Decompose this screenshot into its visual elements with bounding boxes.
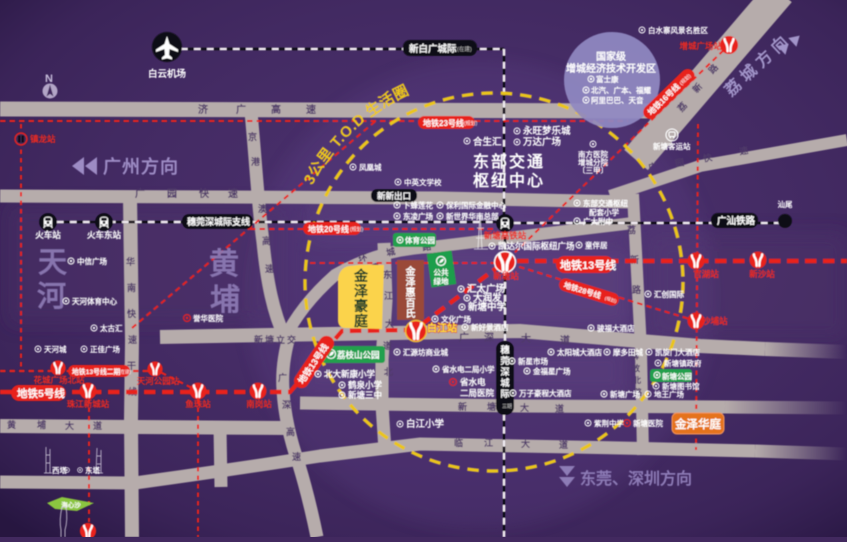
svg-text:东部交通: 东部交通 <box>473 152 545 171</box>
svg-text:北汽、广本、福耀: 北汽、广本、福耀 <box>591 85 651 95</box>
svg-text:黄: 黄 <box>7 419 16 430</box>
svg-text:新塘站: 新塘站 <box>493 271 519 281</box>
svg-text:汇创国际: 汇创国际 <box>654 289 684 299</box>
svg-text:大: 大 <box>385 318 394 329</box>
svg-text:泽: 泽 <box>406 276 416 289</box>
svg-text:园: 园 <box>167 188 177 200</box>
svg-text:华: 华 <box>126 256 135 267</box>
svg-text:放: 放 <box>631 363 641 373</box>
svg-text:增城经济技术开发区: 增城经济技术开发区 <box>566 62 656 75</box>
svg-text:快: 快 <box>198 187 210 200</box>
svg-text:地铁13号线: 地铁13号线 <box>560 258 616 272</box>
svg-text:深: 深 <box>484 331 494 344</box>
svg-text:速: 速 <box>306 103 316 116</box>
svg-text:汇源坊商业城: 汇源坊商业城 <box>403 347 448 357</box>
svg-text:配套小学: 配套小学 <box>589 207 619 217</box>
svg-text:东塔: 东塔 <box>85 465 100 475</box>
svg-text:黄: 黄 <box>209 248 239 281</box>
svg-text:京: 京 <box>248 131 257 142</box>
svg-text:永旺梦乐城: 永旺梦乐城 <box>522 125 571 137</box>
svg-text:国家级: 国家级 <box>596 50 627 63</box>
svg-text:速: 速 <box>292 451 301 462</box>
svg-text:路: 路 <box>632 284 642 295</box>
svg-text:天: 天 <box>38 247 67 279</box>
svg-text:万子豪程大酒店: 万子豪程大酒店 <box>518 388 572 398</box>
svg-text:豪: 豪 <box>354 298 368 314</box>
svg-text:太阳城大酒店: 太阳城大酒店 <box>557 347 602 357</box>
svg-text:〔三甲〕: 〔三甲〕 <box>578 165 608 175</box>
svg-text:凯旋门大酒店: 凯旋门大酒店 <box>655 347 700 357</box>
svg-text:紫荆中学: 紫荆中学 <box>594 418 624 428</box>
svg-text:镇龙站: 镇龙站 <box>30 134 56 144</box>
svg-text:庭: 庭 <box>354 313 369 329</box>
svg-text:穗: 穗 <box>501 344 510 355</box>
svg-text:珠江新城站: 珠江新城站 <box>67 399 110 409</box>
svg-text:广: 广 <box>459 331 469 344</box>
svg-text:枢纽中心: 枢纽中心 <box>473 171 545 190</box>
svg-text:广: 广 <box>236 103 246 116</box>
svg-text:新: 新 <box>458 401 467 412</box>
svg-text:省水电: 省水电 <box>459 377 486 387</box>
svg-text:大: 大 <box>65 420 74 431</box>
svg-text:(在建): (在建) <box>457 45 472 53</box>
svg-text:广: 广 <box>278 372 287 383</box>
svg-text:火车站: 火车站 <box>35 230 61 240</box>
svg-text:摩多田城: 摩多田城 <box>613 347 643 357</box>
svg-text:白云机场: 白云机场 <box>148 68 187 80</box>
svg-text:童伴居: 童伴居 <box>585 240 608 250</box>
svg-text:深: 深 <box>501 366 510 377</box>
svg-text:正佳广场: 正佳广场 <box>90 344 120 354</box>
svg-text:新塘医院: 新塘医院 <box>633 418 663 428</box>
svg-text:新塘立交: 新塘立交 <box>254 334 298 345</box>
svg-text:(在建): (在建) <box>119 369 131 376</box>
svg-text:新世界华南总部: 新世界华南总部 <box>446 211 499 221</box>
svg-text:江: 江 <box>384 290 393 301</box>
svg-text:新新出口: 新新出口 <box>377 191 411 201</box>
svg-text:道: 道 <box>555 403 564 414</box>
svg-text:河: 河 <box>37 280 66 313</box>
svg-text:荔: 荔 <box>626 224 636 235</box>
svg-text:莞: 莞 <box>500 355 510 366</box>
svg-text:新塘镇政府: 新塘镇政府 <box>664 358 702 368</box>
svg-text:城: 城 <box>501 377 510 388</box>
svg-text:高: 高 <box>286 426 295 437</box>
svg-text:凤凰城: 凤凰城 <box>359 162 382 172</box>
svg-text:花城广场北站: 花城广场北站 <box>33 375 85 385</box>
svg-text:骏福大酒店: 骏福大酒店 <box>597 323 635 333</box>
svg-text:临: 临 <box>454 437 463 448</box>
svg-text:速: 速 <box>228 187 238 200</box>
svg-text:埔: 埔 <box>37 419 46 430</box>
svg-text:三期: 三期 <box>502 404 512 410</box>
svg-text:二局医院: 二局医院 <box>460 388 495 398</box>
svg-text:天河公园站: 天河公园站 <box>137 376 180 386</box>
svg-text:新好景酒店: 新好景酒店 <box>471 322 509 332</box>
svg-text:新沙站: 新沙站 <box>749 269 775 279</box>
svg-text:北: 北 <box>633 375 641 385</box>
svg-text:公共: 公共 <box>434 267 449 277</box>
svg-text:省水电二局小学: 省水电二局小学 <box>441 364 495 374</box>
svg-text:北: 北 <box>384 366 393 377</box>
svg-text:金: 金 <box>405 265 417 278</box>
svg-text:速: 速 <box>738 144 749 156</box>
svg-text:白水寨风景名胜区: 白水寨风景名胜区 <box>648 25 708 35</box>
svg-text:地铁5号线: 地铁5号线 <box>17 387 65 400</box>
svg-text:道: 道 <box>560 334 570 347</box>
svg-text:汕尾: 汕尾 <box>778 199 793 209</box>
svg-text:速: 速 <box>128 334 137 345</box>
svg-text:园: 园 <box>674 157 685 168</box>
svg-text:N: N <box>45 73 53 85</box>
svg-text:增城广场站: 增城广场站 <box>679 41 722 51</box>
svg-text:凯达尔国际枢纽广场: 凯达尔国际枢纽广场 <box>498 241 575 251</box>
svg-text:道: 道 <box>93 420 102 431</box>
svg-text:大: 大 <box>521 438 530 449</box>
svg-text:快: 快 <box>127 308 137 319</box>
svg-text:誉华医院: 誉华医院 <box>192 313 223 323</box>
svg-text:天河体育中心: 天河体育中心 <box>72 296 117 306</box>
svg-text:澳: 澳 <box>258 203 268 214</box>
svg-text:荔枝山公园: 荔枝山公园 <box>336 350 380 360</box>
svg-text:广: 广 <box>647 160 658 172</box>
svg-text:江: 江 <box>484 437 493 448</box>
svg-text:大: 大 <box>521 332 531 345</box>
svg-text:南: 南 <box>127 282 136 293</box>
svg-text:沙埔站: 沙埔站 <box>702 316 728 326</box>
svg-text:新塘广场: 新塘广场 <box>610 389 640 399</box>
svg-text:际: 际 <box>501 389 510 399</box>
svg-text:北大新康小学: 北大新康小学 <box>324 369 376 379</box>
svg-text:速: 速 <box>265 263 274 274</box>
svg-text:新塘高铁站: 新塘高铁站 <box>484 231 527 241</box>
svg-text:中信广场: 中信广场 <box>77 256 107 266</box>
svg-text:(规划): (规划) <box>350 226 364 233</box>
svg-text:新塘中学: 新塘中学 <box>468 301 507 313</box>
svg-text:东: 东 <box>383 269 392 280</box>
svg-text:(规划): (规划) <box>464 120 478 127</box>
svg-text:新塘公园: 新塘公园 <box>662 371 692 381</box>
svg-text:广汕铁路: 广汕铁路 <box>717 215 756 227</box>
svg-text:高: 高 <box>271 103 281 116</box>
svg-text:埔: 埔 <box>210 284 240 317</box>
svg-text:广: 广 <box>135 187 145 200</box>
svg-text:新塘三中: 新塘三中 <box>348 390 382 400</box>
svg-text:南岗站: 南岗站 <box>246 399 272 409</box>
svg-text:东部交通枢纽: 东部交通枢纽 <box>583 198 628 208</box>
svg-text:广大附中: 广大附中 <box>583 216 613 226</box>
svg-text:新白广城际: 新白广城际 <box>409 43 457 55</box>
svg-text:中英文学校: 中英文学校 <box>404 177 442 187</box>
svg-text:地铁20号线: 地铁20号线 <box>308 224 349 234</box>
svg-text:深: 深 <box>282 399 291 410</box>
svg-text:道: 道 <box>559 439 568 450</box>
svg-text:广州方向: 广州方向 <box>103 156 179 177</box>
svg-text:金福星广场: 金福星广场 <box>532 366 571 376</box>
svg-text:大: 大 <box>520 402 529 413</box>
svg-text:官湖站: 官湖站 <box>693 269 719 279</box>
svg-text:文化广场: 文化广场 <box>441 314 471 324</box>
svg-text:塘: 塘 <box>487 401 496 412</box>
svg-text:金泽华庭: 金泽华庭 <box>674 417 721 431</box>
svg-text:惠: 惠 <box>406 286 416 299</box>
svg-text:地铁23号线: 地铁23号线 <box>423 118 464 128</box>
svg-text:阿里巴巴、天音: 阿里巴巴、天音 <box>591 95 644 105</box>
svg-text:西塔: 西塔 <box>52 465 67 475</box>
svg-text:金: 金 <box>353 268 369 284</box>
svg-text:体育公园: 体育公园 <box>405 235 435 245</box>
svg-text:鹤泉小学: 鹤泉小学 <box>348 380 383 390</box>
svg-text:保利国际金融中心: 保利国际金融中心 <box>445 200 506 210</box>
svg-text:港: 港 <box>251 156 261 167</box>
svg-text:济: 济 <box>198 103 209 116</box>
svg-text:太古汇: 太古汇 <box>100 323 123 333</box>
svg-text:高: 高 <box>262 235 271 246</box>
svg-text:新塘客运站: 新塘客运站 <box>653 141 691 151</box>
svg-text:万达广场: 万达广场 <box>522 136 562 148</box>
svg-text:氏: 氏 <box>406 307 416 320</box>
svg-text:新星市场: 新星市场 <box>518 356 548 366</box>
svg-text:白江小学: 白江小学 <box>406 418 445 430</box>
svg-text:绿地: 绿地 <box>434 276 449 286</box>
svg-text:泽: 泽 <box>354 283 368 299</box>
svg-text:鱼珠站: 鱼珠站 <box>185 399 211 409</box>
svg-text:火车东站: 火车东站 <box>87 230 122 240</box>
svg-text:海心沙: 海心沙 <box>61 500 81 509</box>
svg-text:地王广场: 地王广场 <box>654 389 684 399</box>
svg-text:百: 百 <box>406 298 416 310</box>
svg-text:合生汇: 合生汇 <box>473 136 502 148</box>
svg-text:东莞、深圳方向: 东莞、深圳方向 <box>580 469 692 488</box>
svg-text:天河城: 天河城 <box>44 344 67 354</box>
svg-text:东凌广场: 东凌广场 <box>403 211 433 221</box>
svg-text:卜蜂莲花: 卜蜂莲花 <box>403 200 433 210</box>
svg-text:富士康: 富士康 <box>596 74 619 84</box>
svg-text:穗莞深城际支线: 穗莞深城际支线 <box>187 216 250 227</box>
